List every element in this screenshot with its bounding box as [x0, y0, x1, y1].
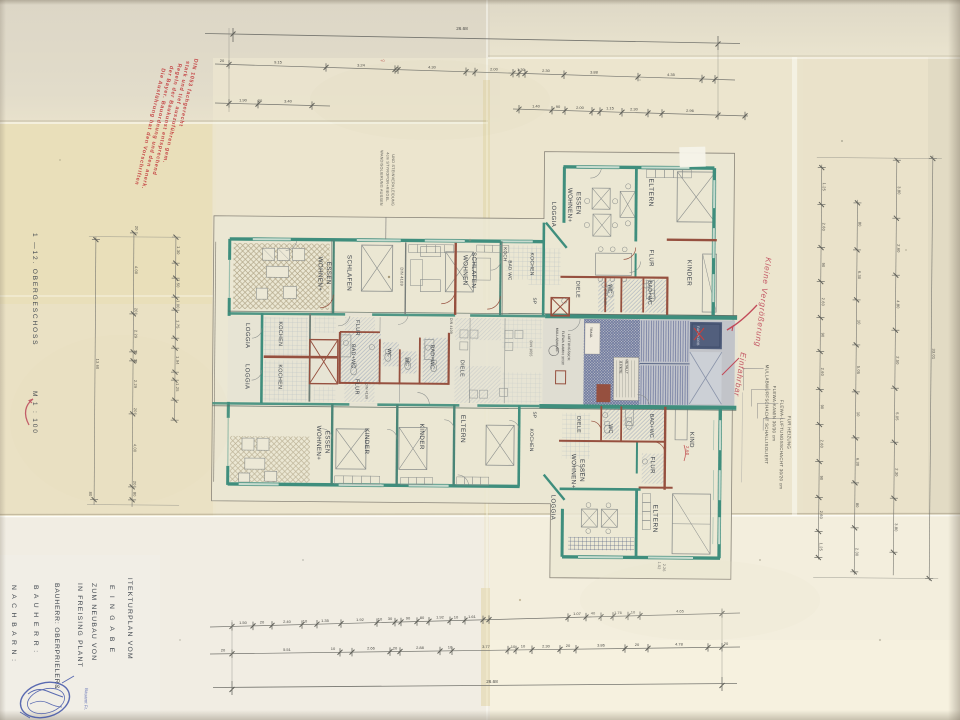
svg-text:80: 80 — [857, 222, 862, 227]
svg-text:6.30: 6.30 — [857, 271, 862, 280]
svg-text:1.35: 1.35 — [321, 618, 330, 623]
svg-text:+0: +0 — [380, 58, 385, 63]
svg-text:1.30: 1.30 — [176, 246, 181, 255]
svg-text:20: 20 — [393, 645, 398, 650]
svg-text:20: 20 — [220, 58, 225, 63]
svg-text:5.05: 5.05 — [856, 366, 861, 374]
svg-text:1.25: 1.25 — [819, 543, 824, 551]
svg-text:LUFTUNGSSCH.: LUFTUNGSSCH. — [567, 334, 571, 362]
svg-text:WOHNEN+: WOHNEN+ — [315, 426, 322, 461]
svg-text:10: 10 — [378, 616, 383, 621]
svg-text:2.60: 2.60 — [821, 298, 826, 307]
svg-text:1.00: 1.00 — [176, 300, 181, 309]
svg-text:3.86: 3.86 — [597, 643, 606, 648]
svg-text:3.40: 3.40 — [284, 99, 293, 104]
svg-text:20: 20 — [134, 226, 139, 231]
svg-text:2.96: 2.96 — [686, 108, 695, 113]
svg-text:20: 20 — [258, 98, 263, 103]
svg-text:4.35: 4.35 — [667, 72, 676, 77]
svg-text:3.80: 3.80 — [894, 523, 899, 532]
svg-text:1.50: 1.50 — [176, 279, 181, 288]
svg-text:DIELE: DIELE — [574, 281, 580, 298]
svg-text:20: 20 — [134, 308, 139, 313]
svg-text:5.51: 5.51 — [283, 647, 292, 652]
svg-text:90: 90 — [556, 104, 561, 109]
svg-text:2.66: 2.66 — [367, 646, 376, 651]
svg-text:30: 30 — [388, 616, 393, 621]
svg-text:LOGGIA: LOGGIA — [243, 364, 249, 389]
svg-text:MULLABWURFSCHACHT SCHALLISOLI: MULLABWURFSCHACHT SCHALLISOLIERT — [764, 365, 770, 465]
svg-text:METALLT: METALLT — [625, 359, 629, 374]
svg-text:BAD+WC: BAD+WC — [350, 344, 356, 368]
svg-text:20: 20 — [221, 648, 226, 653]
svg-text:6.30: 6.30 — [855, 458, 860, 467]
svg-text:90: 90 — [820, 333, 825, 338]
svg-text:2.30: 2.30 — [855, 548, 860, 557]
svg-text:90: 90 — [819, 476, 824, 481]
svg-text:UND STEINVERKLEIDUNG: UND STEINVERKLEIDUNG — [391, 154, 395, 206]
svg-text:10: 10 — [303, 618, 308, 623]
svg-text:SP: SP — [532, 298, 537, 305]
svg-text:KOCH: KOCH — [503, 247, 508, 261]
svg-text:2.00: 2.00 — [576, 105, 585, 110]
svg-text:4.78: 4.78 — [675, 642, 684, 647]
svg-text:FUR HEIZUNG: FUR HEIZUNG — [786, 416, 791, 450]
svg-text:26.68: 26.68 — [486, 679, 498, 684]
svg-text:WOHNEN+: WOHNEN+ — [566, 188, 573, 223]
svg-text:10: 10 — [857, 320, 862, 325]
svg-text:2.60: 2.60 — [820, 368, 825, 377]
svg-text:20: 20 — [635, 642, 640, 647]
svg-text:1.75: 1.75 — [175, 320, 180, 328]
svg-text:DIN 4109: DIN 4109 — [364, 383, 368, 399]
svg-text:10: 10 — [331, 646, 336, 651]
svg-text:ELTERN: ELTERN — [459, 415, 466, 443]
svg-text:2.30: 2.30 — [630, 106, 639, 111]
svg-text:1.92: 1.92 — [356, 617, 365, 622]
svg-text:ELTERN: ELTERN — [651, 505, 658, 533]
svg-text:FLUR: FLUR — [354, 320, 360, 336]
svg-text:2.60: 2.60 — [819, 511, 824, 520]
svg-text:4.80: 4.80 — [896, 300, 901, 309]
svg-text:8 PKTE: 8 PKTE — [619, 361, 623, 374]
svg-text:WOHNEN+: WOHNEN+ — [316, 257, 323, 292]
svg-text:80: 80 — [855, 503, 860, 508]
svg-text:WOHNEN+: WOHNEN+ — [570, 454, 577, 489]
svg-text:FLUR: FLUR — [649, 457, 655, 475]
svg-text:WC: WC — [386, 348, 392, 357]
svg-text:KINDER: KINDER — [685, 260, 692, 286]
svg-text:1.25: 1.25 — [822, 183, 827, 191]
svg-text:10: 10 — [448, 645, 453, 650]
svg-text:WANDISOLIERUNG AUSSEN: WANDISOLIERUNG AUSSEN — [379, 150, 383, 206]
svg-text:1.50: 1.50 — [239, 620, 248, 625]
svg-text:2.50: 2.50 — [895, 356, 900, 365]
svg-text:ELTERN: ELTERN — [647, 179, 654, 207]
svg-text:DIELE: DIELE — [459, 360, 465, 377]
svg-text:LOGGIA: LOGGIA — [550, 202, 556, 227]
svg-text:SCHLAFEN: SCHLAFEN — [470, 252, 477, 288]
svg-text:80: 80 — [420, 615, 425, 620]
svg-text:LOGGIA: LOGGIA — [549, 495, 555, 520]
svg-text:ESSEN: ESSEN — [578, 459, 585, 482]
svg-text:DIN 4109: DIN 4109 — [603, 289, 607, 305]
svg-text:2.30: 2.30 — [894, 468, 899, 477]
svg-text:90: 90 — [406, 616, 411, 621]
svg-text:KINDER: KINDER — [363, 428, 370, 454]
svg-text:3.77: 3.77 — [482, 644, 491, 649]
svg-text:lTEKTURPLAN VOM: lTEKTURPLAN VOM — [126, 578, 133, 660]
svg-text:5.05: 5.05 — [895, 412, 900, 420]
svg-text:2.40: 2.40 — [283, 619, 292, 624]
svg-text:ZUM NEUBAU VON: ZUM NEUBAU VON — [90, 583, 97, 661]
svg-text:20: 20 — [260, 619, 265, 624]
svg-text:10: 10 — [454, 614, 459, 619]
svg-text:N A C H B A R N :: N A C H B A R N : — [10, 585, 17, 662]
svg-text:3.80: 3.80 — [897, 186, 902, 195]
svg-text:3.88: 3.88 — [590, 69, 599, 74]
svg-text:TRAGL: TRAGL — [589, 327, 593, 338]
svg-text:WC: WC — [507, 272, 512, 281]
svg-text:FLEWA KAMIN 30/30: FLEWA KAMIN 30/30 — [561, 331, 565, 365]
svg-text:DIN 4109: DIN 4109 — [449, 318, 453, 334]
svg-text:1.30: 1.30 — [517, 67, 526, 72]
svg-text:26.68: 26.68 — [456, 26, 468, 31]
svg-text:2.88: 2.88 — [416, 645, 425, 650]
svg-text:ESSEN: ESSEN — [325, 262, 332, 285]
svg-text:1.15: 1.15 — [606, 106, 615, 111]
svg-text:FLEWA-KAMIN 30/30 cm: FLEWA-KAMIN 30/30 cm — [772, 386, 777, 442]
svg-text:SP: SP — [532, 412, 537, 419]
svg-text:FLEWA-LUFTUNGSSCHACHT 30/20 c: FLEWA-LUFTUNGSSCHACHT 30/20 cm — [779, 400, 785, 490]
svg-text:BAUHERR: OBERPRIELER&: BAUHERR: OBERPRIELER& — [53, 583, 60, 690]
svg-text:DIN 4109: DIN 4109 — [399, 267, 404, 286]
svg-text:33.01: 33.01 — [931, 349, 936, 360]
svg-text:KOCHEN: KOCHEN — [276, 364, 282, 389]
svg-text:B A U H E R R :: B A U H E R R : — [32, 585, 39, 654]
svg-text:1.92: 1.92 — [436, 615, 445, 620]
svg-text:DIN 1055: DIN 1055 — [529, 341, 533, 357]
svg-text:1 —12. OBERGESCHOSS: 1 —12. OBERGESCHOSS — [31, 233, 38, 346]
svg-text:SCHLAFEN: SCHLAFEN — [345, 255, 352, 291]
svg-text:MULLABWURF: MULLABWURF — [555, 328, 559, 353]
svg-text:FLUR: FLUR — [648, 250, 654, 268]
svg-text:90: 90 — [820, 405, 825, 410]
svg-text:BAD: BAD — [508, 260, 513, 271]
svg-text:1.90: 1.90 — [239, 98, 248, 103]
svg-text:20: 20 — [566, 643, 571, 648]
svg-text:2.30: 2.30 — [542, 68, 551, 73]
svg-text:10: 10 — [511, 644, 516, 649]
svg-text:BAD+WC: BAD+WC — [646, 281, 652, 305]
svg-text:ESSEN: ESSEN — [323, 431, 330, 454]
svg-text:4cm STYROPOR+RIEGEL: 4cm STYROPOR+RIEGEL — [385, 152, 389, 202]
svg-text:BAD+WC: BAD+WC — [429, 345, 435, 369]
svg-text:BAD+WC: BAD+WC — [648, 414, 654, 438]
svg-text:FLUR: FLUR — [353, 379, 359, 395]
svg-text:WC: WC — [404, 357, 410, 366]
svg-text:KOCHEN: KOCHEN — [528, 429, 534, 452]
svg-text:10: 10 — [521, 644, 526, 649]
svg-text:4.00: 4.00 — [134, 266, 139, 275]
svg-text:1.07: 1.07 — [573, 611, 582, 616]
svg-text:1.61: 1.61 — [468, 614, 477, 619]
svg-text:LOGGIA: LOGGIA — [244, 323, 250, 348]
svg-text:20: 20 — [724, 641, 729, 646]
svg-text:E I N G A B E: E I N G A B E — [108, 585, 115, 654]
svg-text:IN FREISING PLANT: IN FREISING PLANT — [76, 583, 83, 668]
svg-text:90: 90 — [821, 263, 826, 268]
svg-text:2.60: 2.60 — [820, 440, 825, 449]
svg-text:WC: WC — [607, 424, 613, 433]
svg-text:KINDER: KINDER — [418, 424, 425, 450]
svg-text:ESSEN: ESSEN — [575, 192, 582, 215]
svg-text:Bauamt Fr.: Bauamt Fr. — [83, 688, 89, 710]
svg-text:10: 10 — [856, 412, 861, 417]
svg-text:9.15: 9.15 — [274, 60, 283, 65]
svg-text:2.60: 2.60 — [896, 244, 901, 253]
svg-text:WOHNEN: WOHNEN — [461, 255, 468, 286]
svg-text:2.30: 2.30 — [542, 643, 551, 648]
svg-text:2.60: 2.60 — [821, 223, 826, 232]
svg-text:KOCHEN: KOCHEN — [277, 321, 283, 346]
svg-text:KOCHEN: KOCHEN — [528, 253, 534, 276]
svg-text:DIELE: DIELE — [575, 416, 581, 433]
